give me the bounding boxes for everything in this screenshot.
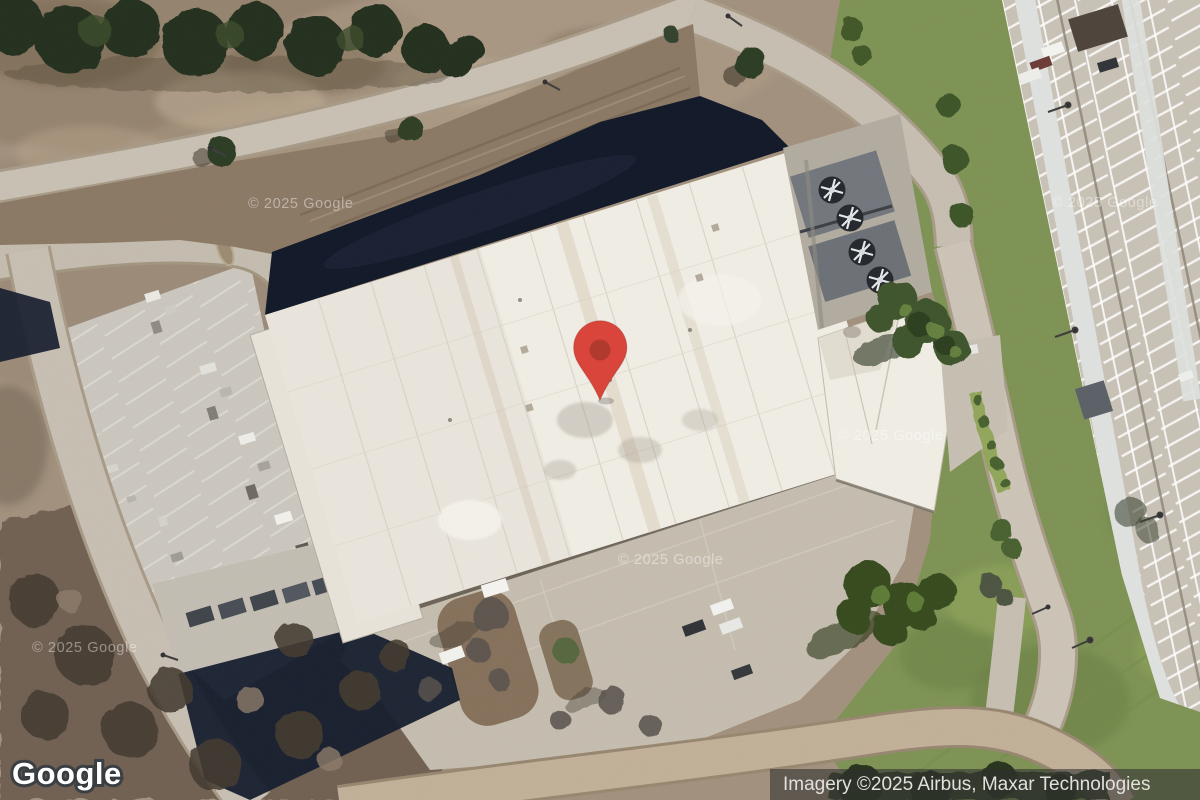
google-logo[interactable]: Google xyxy=(12,756,122,792)
satellite-map-canvas[interactable]: © 2025 Google © 2025 Google © 2025 Googl… xyxy=(0,0,1200,800)
imagery-watermark: © 2025 Google xyxy=(32,640,138,656)
attribution-text: Imagery ©2025 Airbus, Maxar Technologies xyxy=(783,774,1150,795)
imagery-watermark: © 2025 Google xyxy=(248,196,354,212)
attribution-bar: Imagery ©2025 Airbus, Maxar Technologies xyxy=(770,769,1200,800)
imagery-watermark: © 2025 Google xyxy=(1052,195,1158,211)
imagery-watermark: © 2025 Google xyxy=(618,552,724,568)
satellite-imagery: © 2025 Google © 2025 Google © 2025 Googl… xyxy=(0,0,1200,800)
pin-inner-circle xyxy=(590,340,611,361)
imagery-watermark: © 2025 Google xyxy=(838,428,944,444)
